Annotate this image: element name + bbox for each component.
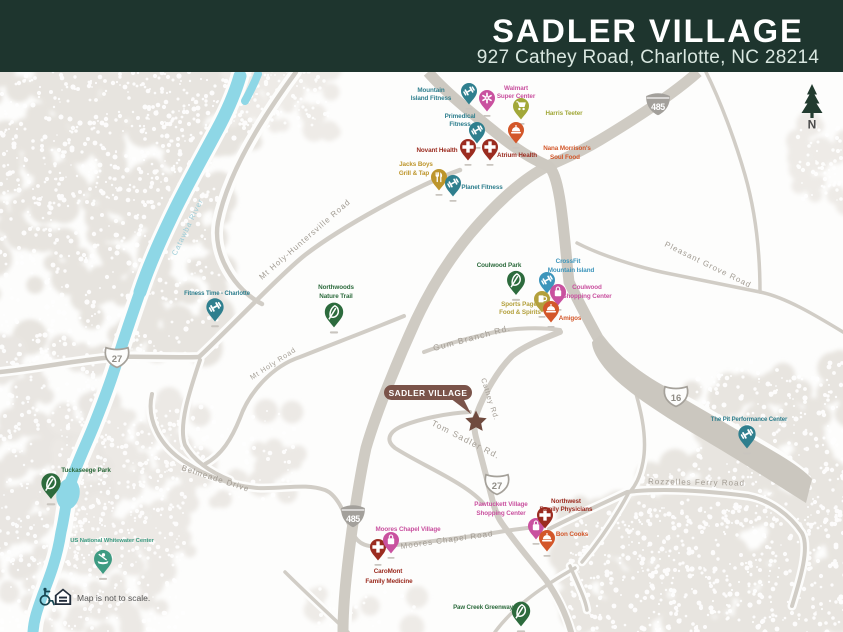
svg-text:927 Cathey Road, Charlotte, NC: 927 Cathey Road, Charlotte, NC 28214 xyxy=(477,47,820,68)
svg-text:Moores Chapel Village: Moores Chapel Village xyxy=(376,526,442,533)
svg-text:SADLER VILLAGE: SADLER VILLAGE xyxy=(492,13,804,49)
svg-text:485: 485 xyxy=(651,102,665,112)
svg-text:Paw Creek Greenway: Paw Creek Greenway xyxy=(453,604,514,611)
svg-text:Super Center: Super Center xyxy=(497,93,536,100)
svg-text:Amigos: Amigos xyxy=(559,315,582,322)
svg-text:Northwest: Northwest xyxy=(551,498,582,505)
svg-text:Bon Cooks: Bon Cooks xyxy=(556,531,589,538)
svg-text:Novant Health: Novant Health xyxy=(416,147,457,154)
svg-text:Family Medicine: Family Medicine xyxy=(365,578,413,585)
svg-text:Primedical: Primedical xyxy=(445,113,476,120)
svg-text:Pawtuckett Village: Pawtuckett Village xyxy=(474,501,528,508)
svg-text:Jacks Boys: Jacks Boys xyxy=(399,161,433,168)
svg-text:485: 485 xyxy=(346,514,360,524)
svg-text:Planet Fitness: Planet Fitness xyxy=(461,184,503,191)
svg-text:Atrium Health: Atrium Health xyxy=(497,152,537,159)
svg-text:27: 27 xyxy=(492,481,503,492)
svg-text:Map is not to scale.: Map is not to scale. xyxy=(77,593,150,603)
svg-text:CrossFit: CrossFit xyxy=(556,258,582,265)
svg-text:Nana Morrison's: Nana Morrison's xyxy=(543,145,591,152)
svg-text:Shopping Center: Shopping Center xyxy=(476,510,526,517)
svg-text:Grill & Tap: Grill & Tap xyxy=(399,170,430,177)
svg-text:CaroMont: CaroMont xyxy=(374,568,404,575)
svg-text:SADLER VILLAGE: SADLER VILLAGE xyxy=(389,388,468,398)
svg-text:Northwoods: Northwoods xyxy=(318,284,354,291)
svg-text:N: N xyxy=(808,118,817,132)
svg-text:The Pit Performance Center: The Pit Performance Center xyxy=(711,417,788,423)
svg-text:Coulwood Park: Coulwood Park xyxy=(477,262,522,269)
svg-text:Coulwood: Coulwood xyxy=(572,284,602,291)
svg-text:Walmart: Walmart xyxy=(504,85,529,92)
svg-text:27: 27 xyxy=(112,354,123,365)
svg-text:Mountain: Mountain xyxy=(417,87,444,94)
svg-text:Fitness Time - Charlotte: Fitness Time - Charlotte xyxy=(184,291,251,297)
svg-text:Mountain Island: Mountain Island xyxy=(548,267,595,274)
svg-text:Fitness: Fitness xyxy=(449,121,471,128)
svg-text:Sports Page: Sports Page xyxy=(501,301,537,308)
svg-text:Food & Spirits: Food & Spirits xyxy=(499,309,541,316)
svg-text:Soul Food: Soul Food xyxy=(550,154,580,161)
svg-text:Island Fitness: Island Fitness xyxy=(411,95,452,102)
svg-text:Tuckaseege Park: Tuckaseege Park xyxy=(61,467,111,474)
svg-text:Shopping Center: Shopping Center xyxy=(562,293,612,300)
svg-text:16: 16 xyxy=(671,393,682,404)
svg-text:Family Physicians: Family Physicians xyxy=(540,506,593,513)
svg-text:Nature Trail: Nature Trail xyxy=(319,293,353,300)
svg-text:Harris Teeter: Harris Teeter xyxy=(545,110,583,117)
svg-text:Rozzelles Ferry Road: Rozzelles Ferry Road xyxy=(648,477,745,488)
svg-text:US National Whitewater Center: US National Whitewater Center xyxy=(70,538,154,544)
